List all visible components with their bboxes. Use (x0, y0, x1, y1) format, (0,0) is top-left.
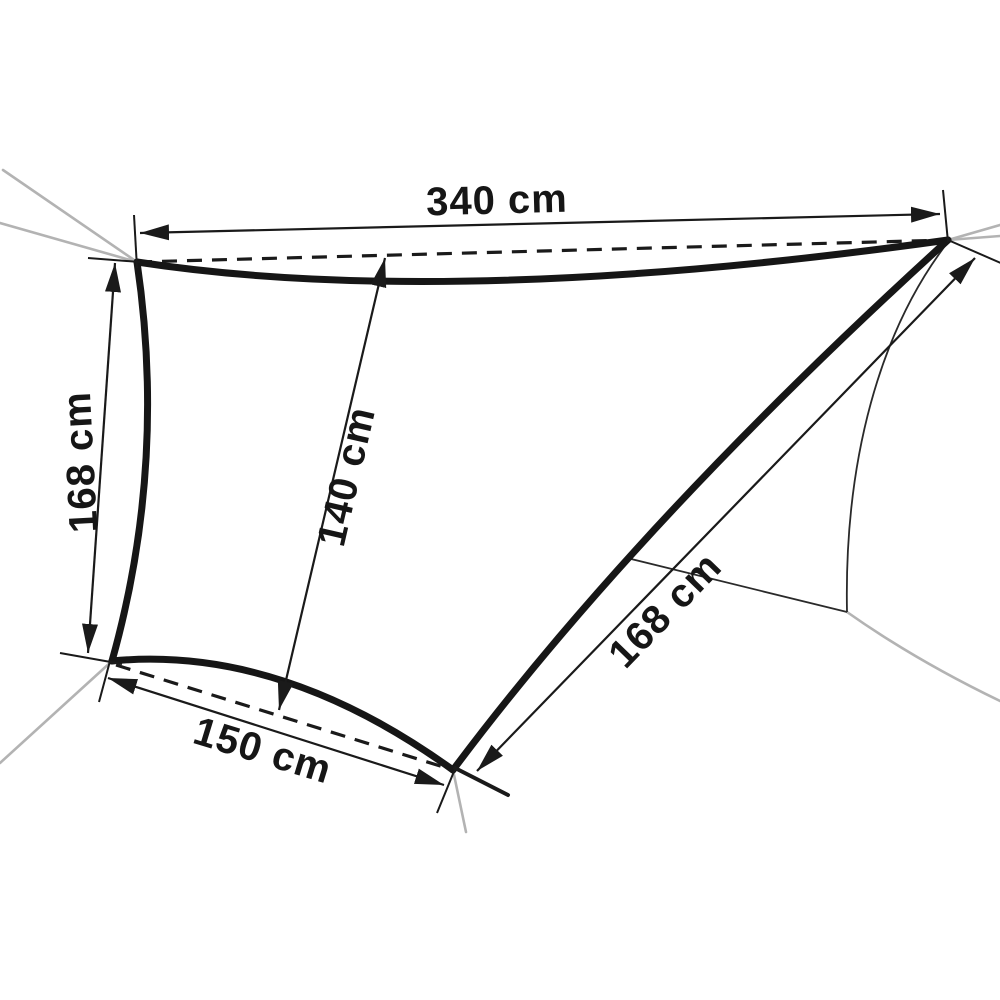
guy-line-bottom-middle (453, 770, 466, 832)
guy-line-bottom-left (0, 661, 112, 763)
tarp-left-edge (112, 262, 148, 661)
tarp-dimension-diagram: 340 cm 168 cm 140 cm 150 cm 168 cm (0, 0, 1000, 1000)
dimension-label-left-168: 168 cm (55, 390, 106, 534)
dimension-labels: 340 cm 168 cm 140 cm 150 cm 168 cm (55, 177, 730, 793)
tarp-top-edge (137, 240, 948, 282)
right-panel-curve (847, 242, 948, 612)
dimension-line-168-right (477, 258, 975, 771)
dimension-label-top-340: 340 cm (426, 177, 569, 225)
tarp-outline (112, 240, 948, 770)
construction-lines (627, 242, 948, 612)
diagram-svg: 340 cm 168 cm 140 cm 150 cm 168 cm (0, 0, 1000, 1000)
ext-line-bottom-middle-right (455, 768, 508, 795)
ext-line-top-right-vertical (943, 190, 948, 242)
guy-line-top-left-upper (3, 170, 137, 262)
dimension-label-bottom-150: 150 cm (189, 709, 337, 792)
dashed-chords (116, 240, 948, 770)
guy-lines (0, 170, 1000, 832)
ext-line-bottom-middle-left (437, 769, 455, 813)
guy-line-right-stake (847, 612, 1000, 701)
tarp-right-edge (453, 240, 948, 770)
dimension-label-middle-140: 140 cm (309, 402, 384, 550)
guy-line-top-left-lower (0, 223, 137, 262)
